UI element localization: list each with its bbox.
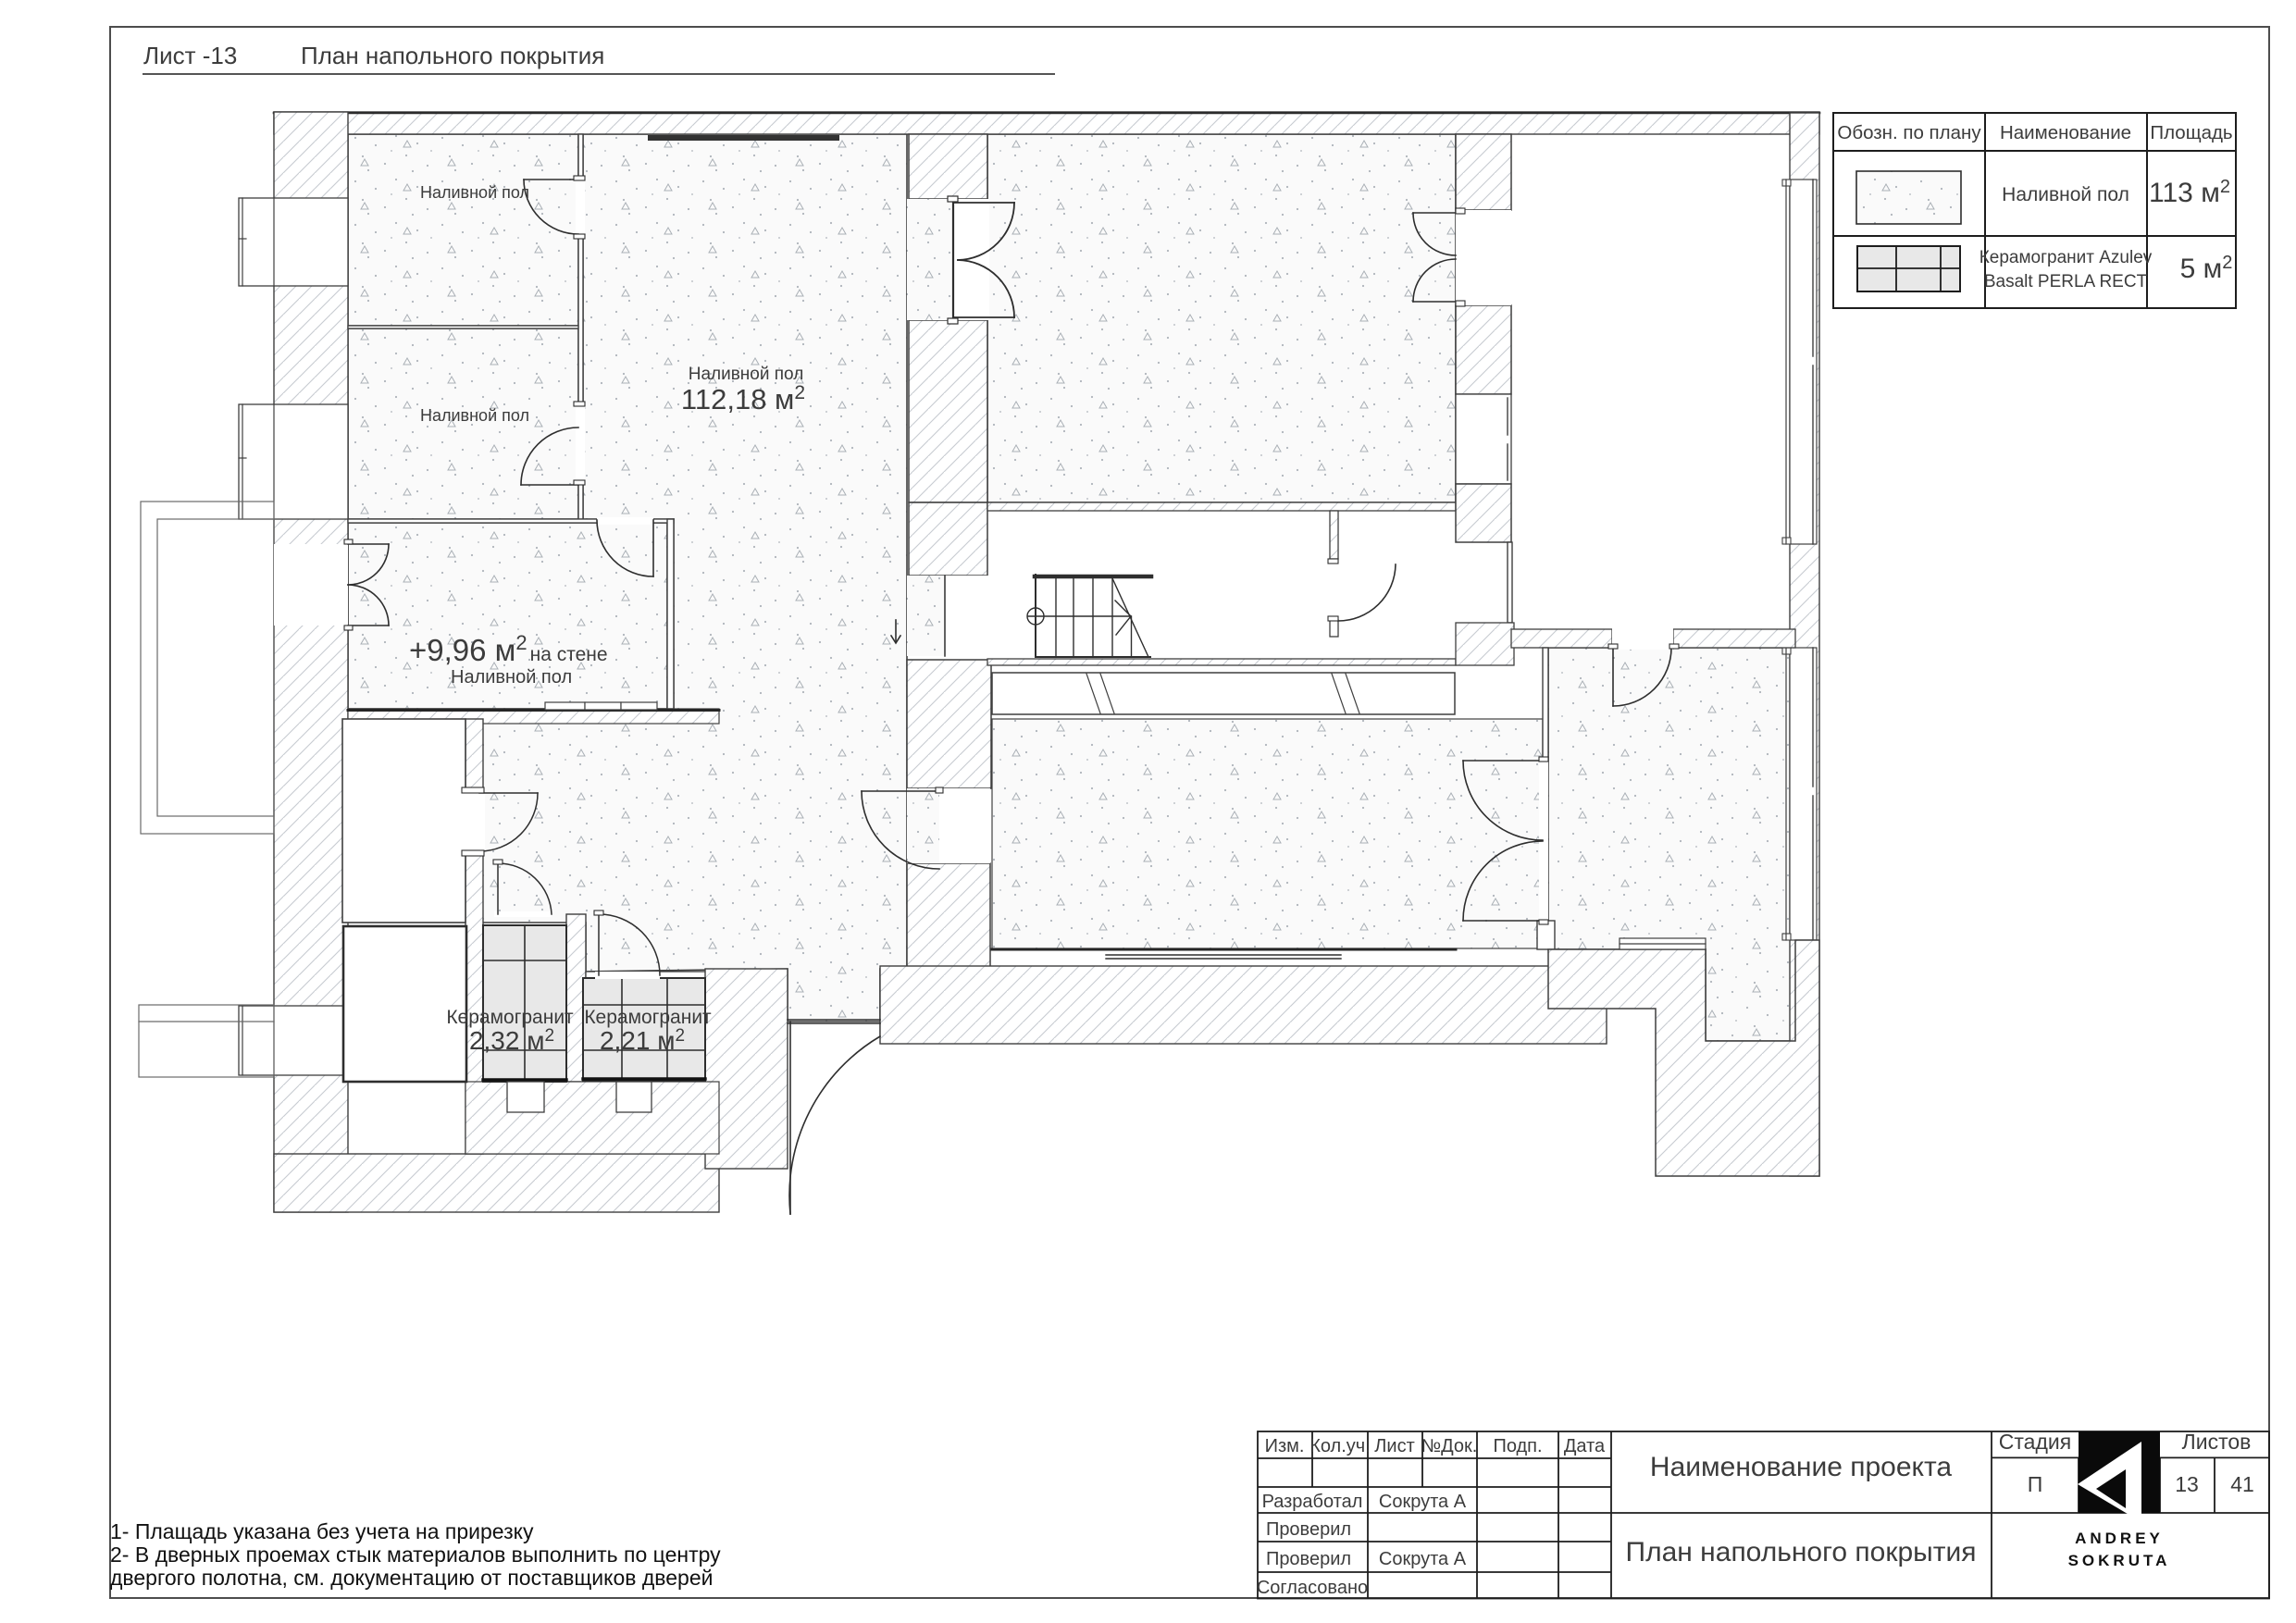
svg-text:Листов: Листов	[2182, 1430, 2252, 1454]
svg-text:41: 41	[2230, 1472, 2254, 1496]
svg-text:П: П	[2028, 1472, 2043, 1496]
svg-text:Наименование проекта: Наименование проекта	[1650, 1452, 1952, 1482]
svg-text:Наливной пол: Наливной пол	[420, 183, 529, 202]
svg-text:SOKRUTA: SOKRUTA	[2068, 1552, 2171, 1569]
svg-text:Сокрута А: Сокрута А	[1379, 1549, 1467, 1569]
svg-text:Площадь: Площадь	[2150, 122, 2232, 143]
svg-text:Керамогранит: Керамогранит	[446, 1007, 574, 1028]
svg-text:Керамогранит: Керамогранит	[584, 1007, 712, 1028]
svg-text:Дата: Дата	[1564, 1436, 1606, 1456]
svg-text:2,32 м2: 2,32 м2	[469, 1026, 554, 1055]
svg-text:2,21 м2: 2,21 м2	[600, 1026, 685, 1055]
svg-text:План напольного покрытия: План напольного покрытия	[1626, 1537, 1977, 1567]
svg-text:Basalt PERLA RECT: Basalt PERLA RECT	[1984, 272, 2148, 291]
svg-text:ANDREY: ANDREY	[2075, 1530, 2164, 1547]
svg-text:Сокрута А: Сокрута А	[1379, 1492, 1467, 1512]
svg-text:112,18 м2: 112,18 м2	[681, 382, 805, 415]
svg-text:Проверил: Проверил	[1266, 1519, 1351, 1540]
svg-text:Кол.уч.: Кол.уч.	[1309, 1436, 1371, 1456]
svg-text:двергого полотна, см. документ: двергого полотна, см. документацию от по…	[110, 1566, 713, 1590]
svg-text:План напольного покрытия: План напольного покрытия	[301, 42, 604, 69]
svg-text:Обозн. по плану: Обозн. по плану	[1837, 122, 1981, 143]
svg-text:113 м2: 113 м2	[2149, 177, 2230, 208]
svg-text:Изм.: Изм.	[1265, 1436, 1305, 1456]
svg-text:Наливной пол: Наливной пол	[2002, 184, 2129, 205]
svg-text:Лист -13: Лист -13	[143, 42, 237, 69]
svg-text:Разработал: Разработал	[1262, 1492, 1363, 1512]
svg-text:13: 13	[2175, 1472, 2199, 1496]
svg-text:Наименование: Наименование	[2000, 122, 2131, 143]
svg-text:Стадия: Стадия	[1999, 1430, 2071, 1454]
svg-text:Наливной пол: Наливной пол	[420, 406, 529, 425]
svg-text:Керамогранит Azulev: Керамогранит Azulev	[1980, 248, 2153, 267]
svg-text:1- Плащадь указана без учета н: 1- Плащадь указана без учета на прирезку	[110, 1519, 534, 1543]
svg-text:№Док.: №Док.	[1421, 1436, 1478, 1456]
svg-text:2- В дверных проемах стык мате: 2- В дверных проемах стык материалов вып…	[110, 1542, 721, 1567]
svg-text:Наливной пол: Наливной пол	[451, 667, 572, 688]
svg-text:Проверил: Проверил	[1266, 1549, 1351, 1569]
svg-text:Лист: Лист	[1374, 1436, 1414, 1456]
svg-text:Наливной пол: Наливной пол	[689, 365, 804, 384]
svg-text:Согласовано: Согласовано	[1257, 1578, 1368, 1598]
svg-text:Подп.: Подп.	[1493, 1436, 1542, 1456]
svg-text:5 м2: 5 м2	[2180, 253, 2233, 284]
